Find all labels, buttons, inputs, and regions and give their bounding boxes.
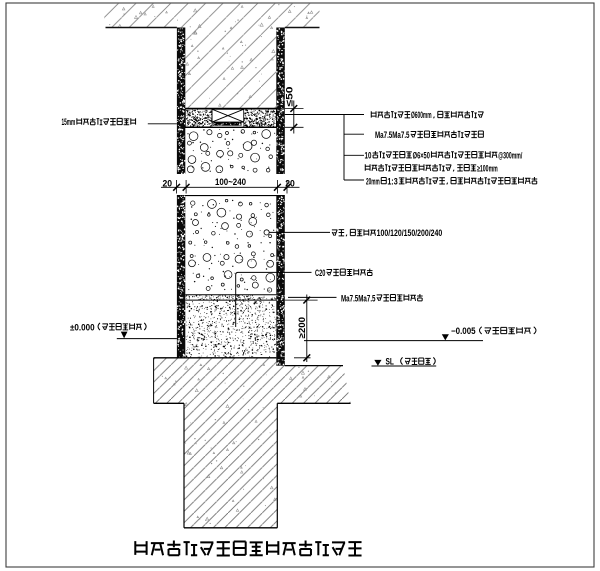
svg-text:100~240: 100~240 bbox=[215, 177, 246, 188]
svg-text:±0.000: ±0.000 bbox=[70, 322, 95, 332]
svg-text:20mm: 20mm bbox=[366, 176, 380, 186]
svg-text:−0.005: −0.005 bbox=[451, 326, 476, 336]
svg-text:1:3: 1:3 bbox=[387, 176, 397, 186]
svg-text:Ø600mm: Ø600mm bbox=[411, 110, 432, 120]
svg-text:SL: SL bbox=[386, 356, 395, 367]
svg-text:Ma7.5Ma7.5: Ma7.5Ma7.5 bbox=[341, 293, 376, 303]
svg-text:100/120/150/200/240: 100/120/150/200/240 bbox=[377, 228, 443, 238]
svg-text:C20: C20 bbox=[315, 268, 325, 278]
svg-text:20: 20 bbox=[163, 178, 173, 189]
svg-text:20: 20 bbox=[285, 178, 295, 189]
svg-text:≥100mm: ≥100mm bbox=[477, 163, 498, 173]
svg-text:10: 10 bbox=[365, 150, 372, 160]
svg-text:@300mm/: @300mm/ bbox=[498, 150, 522, 160]
svg-text:≥200: ≥200 bbox=[297, 317, 308, 339]
svg-text:Ø6×50: Ø6×50 bbox=[413, 150, 430, 160]
svg-text:≤50: ≤50 bbox=[284, 87, 295, 107]
svg-text:Ma7.5Ma7.5: Ma7.5Ma7.5 bbox=[375, 130, 410, 140]
svg-text:15mm: 15mm bbox=[62, 117, 76, 127]
